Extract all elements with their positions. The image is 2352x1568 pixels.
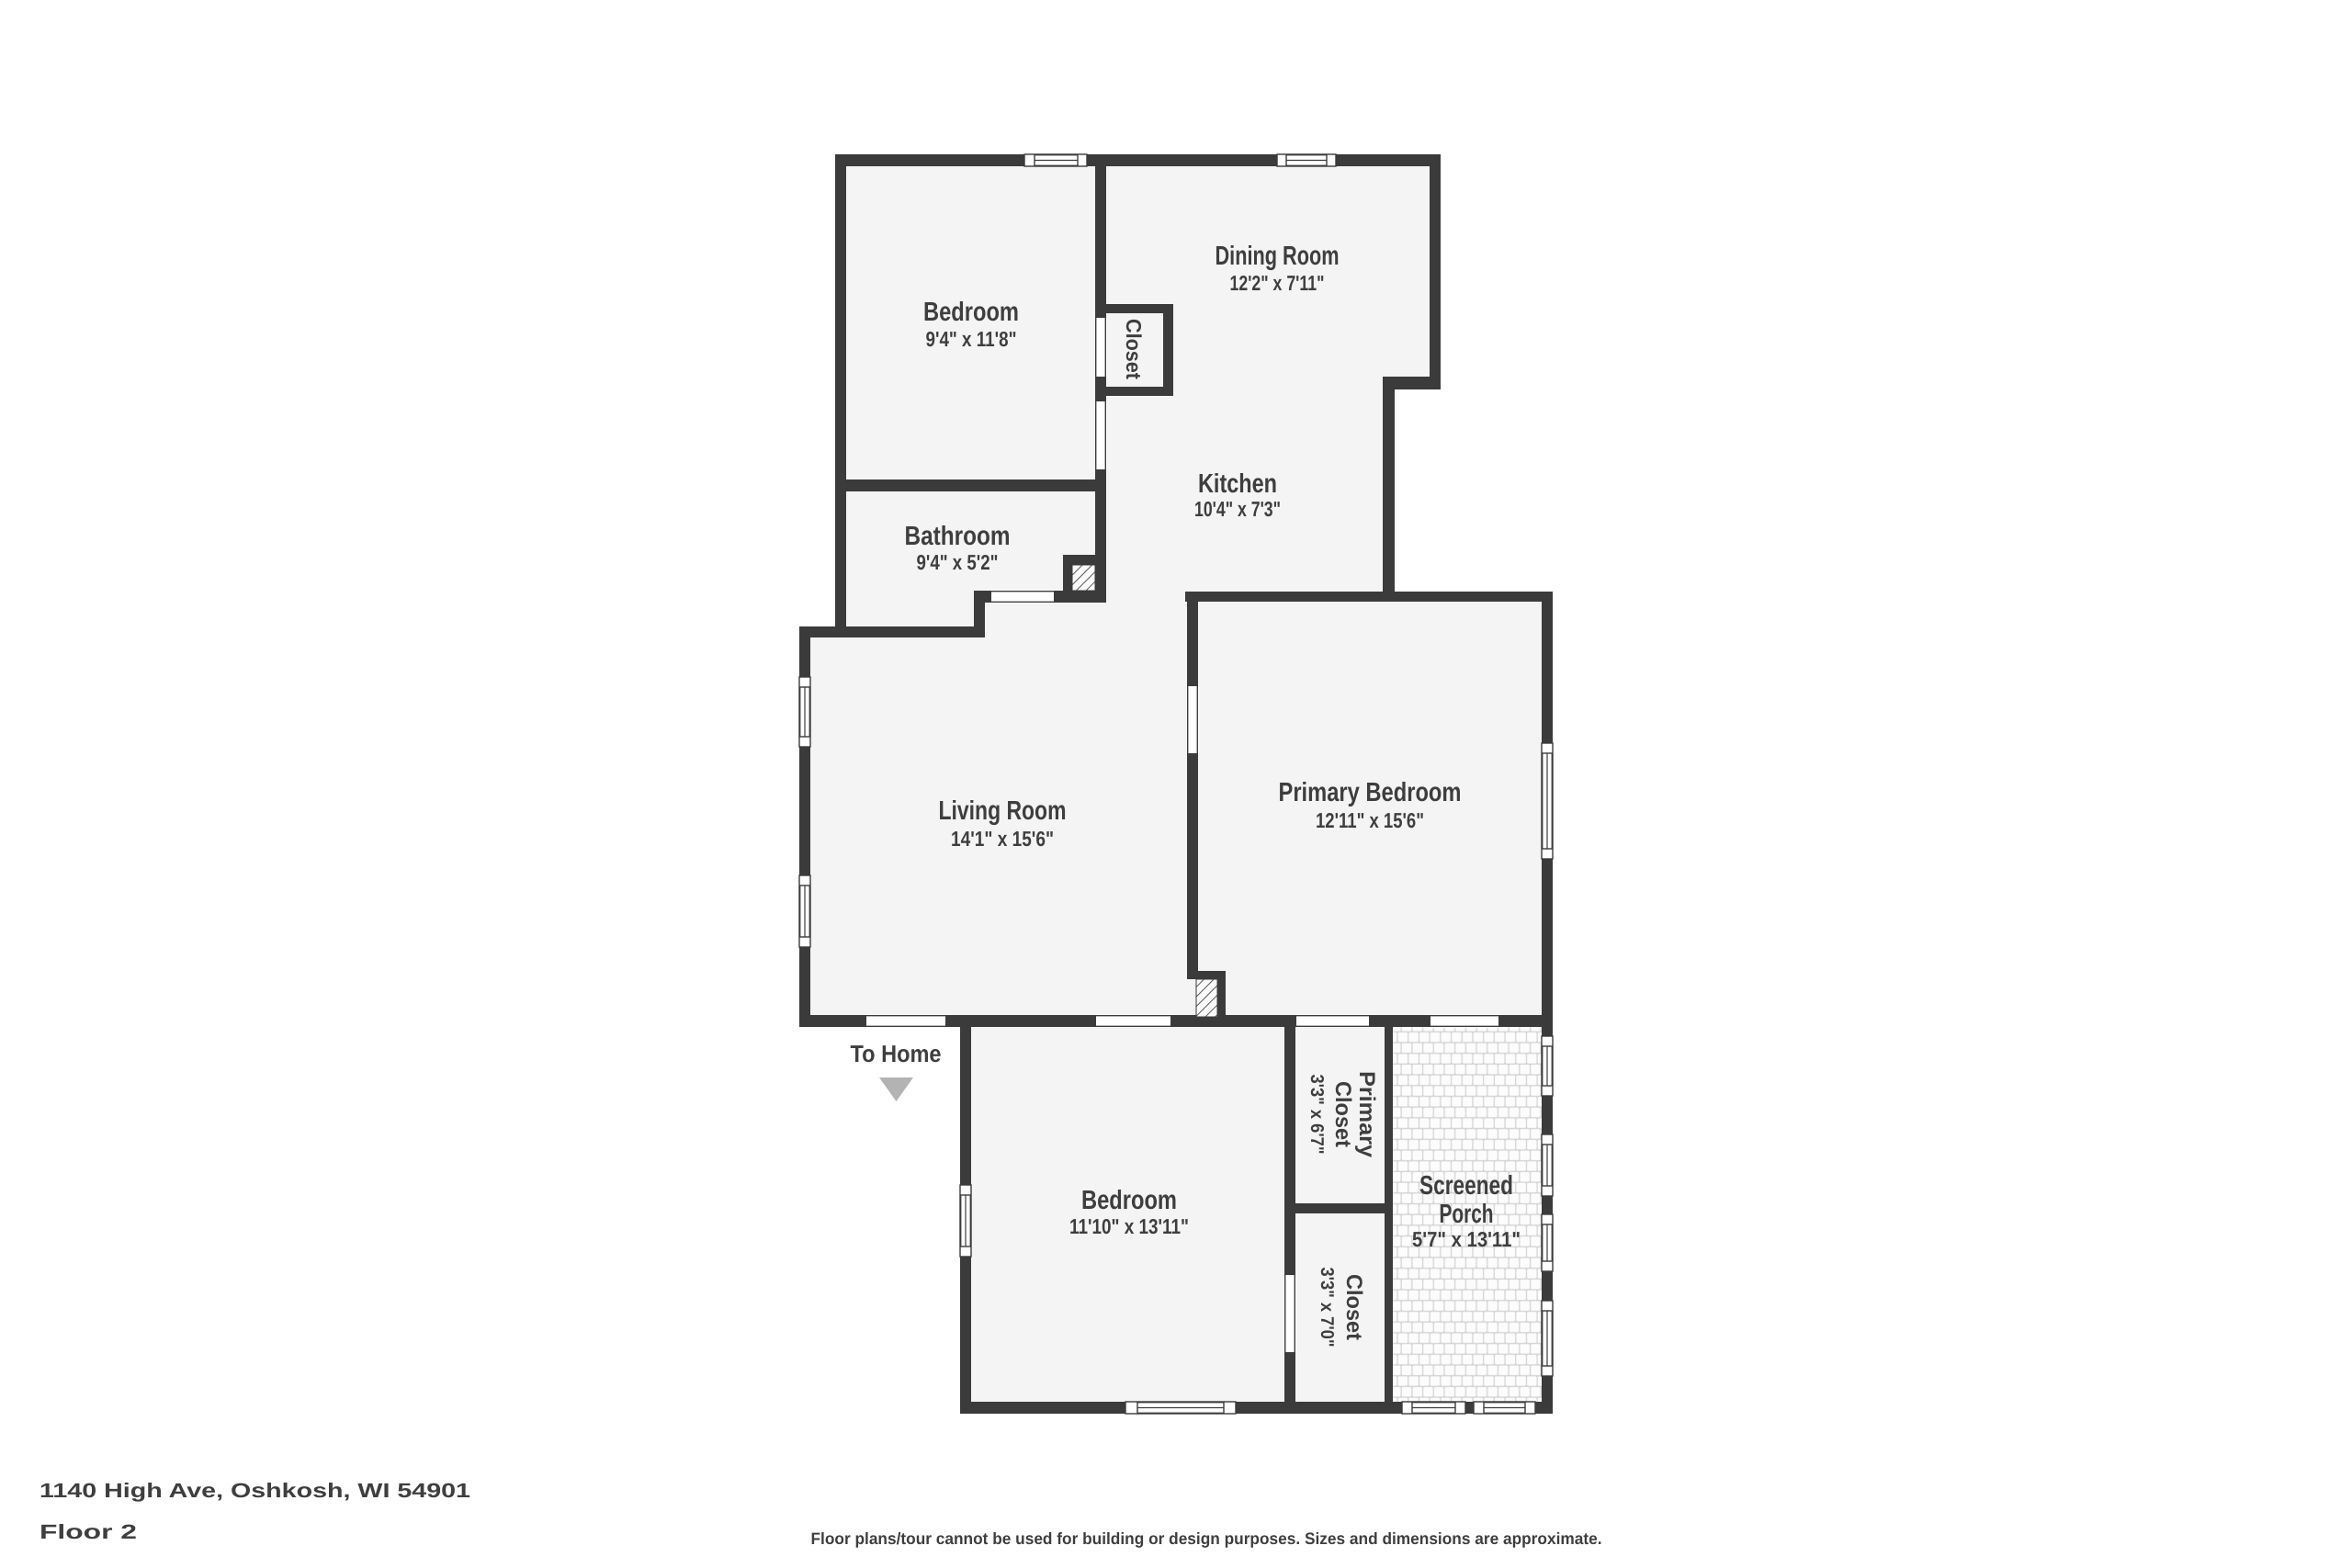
svg-text:Bedroom: Bedroom <box>923 298 1019 327</box>
svg-text:Closet: Closet <box>1341 1274 1366 1340</box>
svg-text:3'3" x 7'0": 3'3" x 7'0" <box>1317 1268 1337 1348</box>
svg-text:9'4" x 11'8": 9'4" x 11'8" <box>926 327 1017 351</box>
svg-text:Kitchen: Kitchen <box>1198 469 1277 499</box>
svg-text:Bathroom: Bathroom <box>905 522 1011 551</box>
svg-text:Primary: Primary <box>1354 1071 1379 1158</box>
svg-text:Living Room: Living Room <box>939 796 1067 826</box>
svg-text:10'4" x 7'3": 10'4" x 7'3" <box>1194 497 1281 521</box>
svg-text:Bedroom: Bedroom <box>1081 1186 1177 1215</box>
svg-text:11'10" x 13'11": 11'10" x 13'11" <box>1069 1214 1189 1238</box>
svg-text:5'7" x 13'11": 5'7" x 13'11" <box>1412 1227 1521 1251</box>
svg-text:12'2" x 7'11": 12'2" x 7'11" <box>1230 271 1325 295</box>
svg-text:Primary Bedroom: Primary Bedroom <box>1279 778 1462 807</box>
svg-text:1140 High Ave, Oshkosh, WI 549: 1140 High Ave, Oshkosh, WI 54901 <box>40 1479 470 1502</box>
svg-text:3'3" x 6'7": 3'3" x 6'7" <box>1306 1075 1327 1155</box>
svg-text:Floor plans/tour cannot be use: Floor plans/tour cannot be used for buil… <box>811 1529 1602 1548</box>
svg-text:12'11" x 15'6": 12'11" x 15'6" <box>1316 808 1424 832</box>
svg-text:Dining Room: Dining Room <box>1216 242 1340 271</box>
svg-text:Closet: Closet <box>1330 1081 1355 1147</box>
svg-text:9'4" x 5'2": 9'4" x 5'2" <box>917 550 999 574</box>
svg-text:14'1" x 15'6": 14'1" x 15'6" <box>951 827 1054 851</box>
svg-text:Porch: Porch <box>1440 1200 1494 1229</box>
svg-text:Screened: Screened <box>1419 1171 1513 1201</box>
svg-text:Closet: Closet <box>1122 319 1146 379</box>
svg-text:To Home: To Home <box>851 1040 942 1067</box>
svg-text:Floor 2: Floor 2 <box>40 1520 137 1543</box>
